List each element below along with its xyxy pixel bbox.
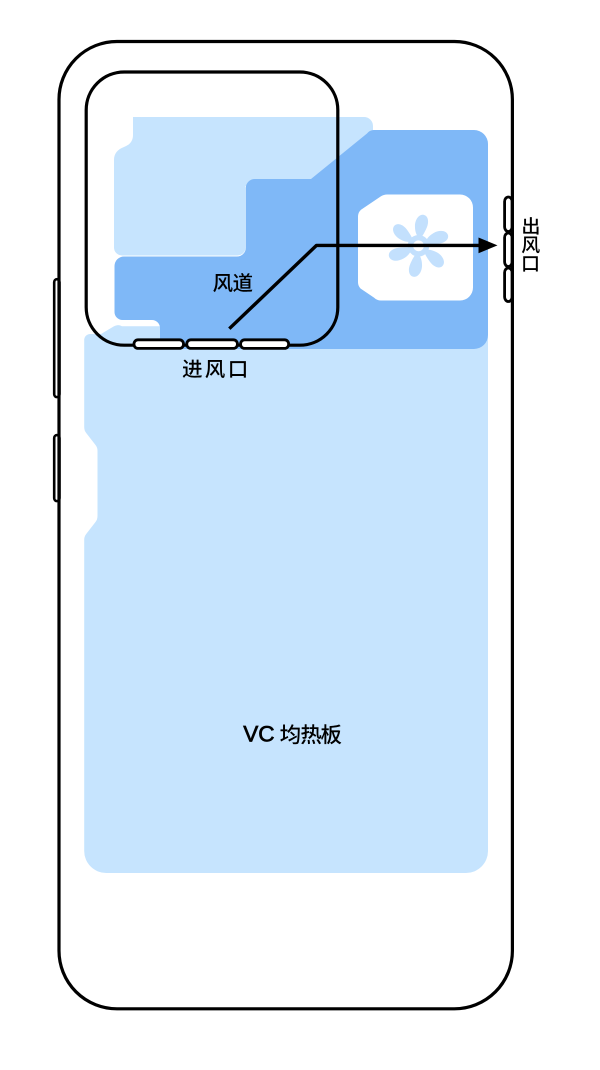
svg-text:VC: VC [243, 722, 274, 747]
